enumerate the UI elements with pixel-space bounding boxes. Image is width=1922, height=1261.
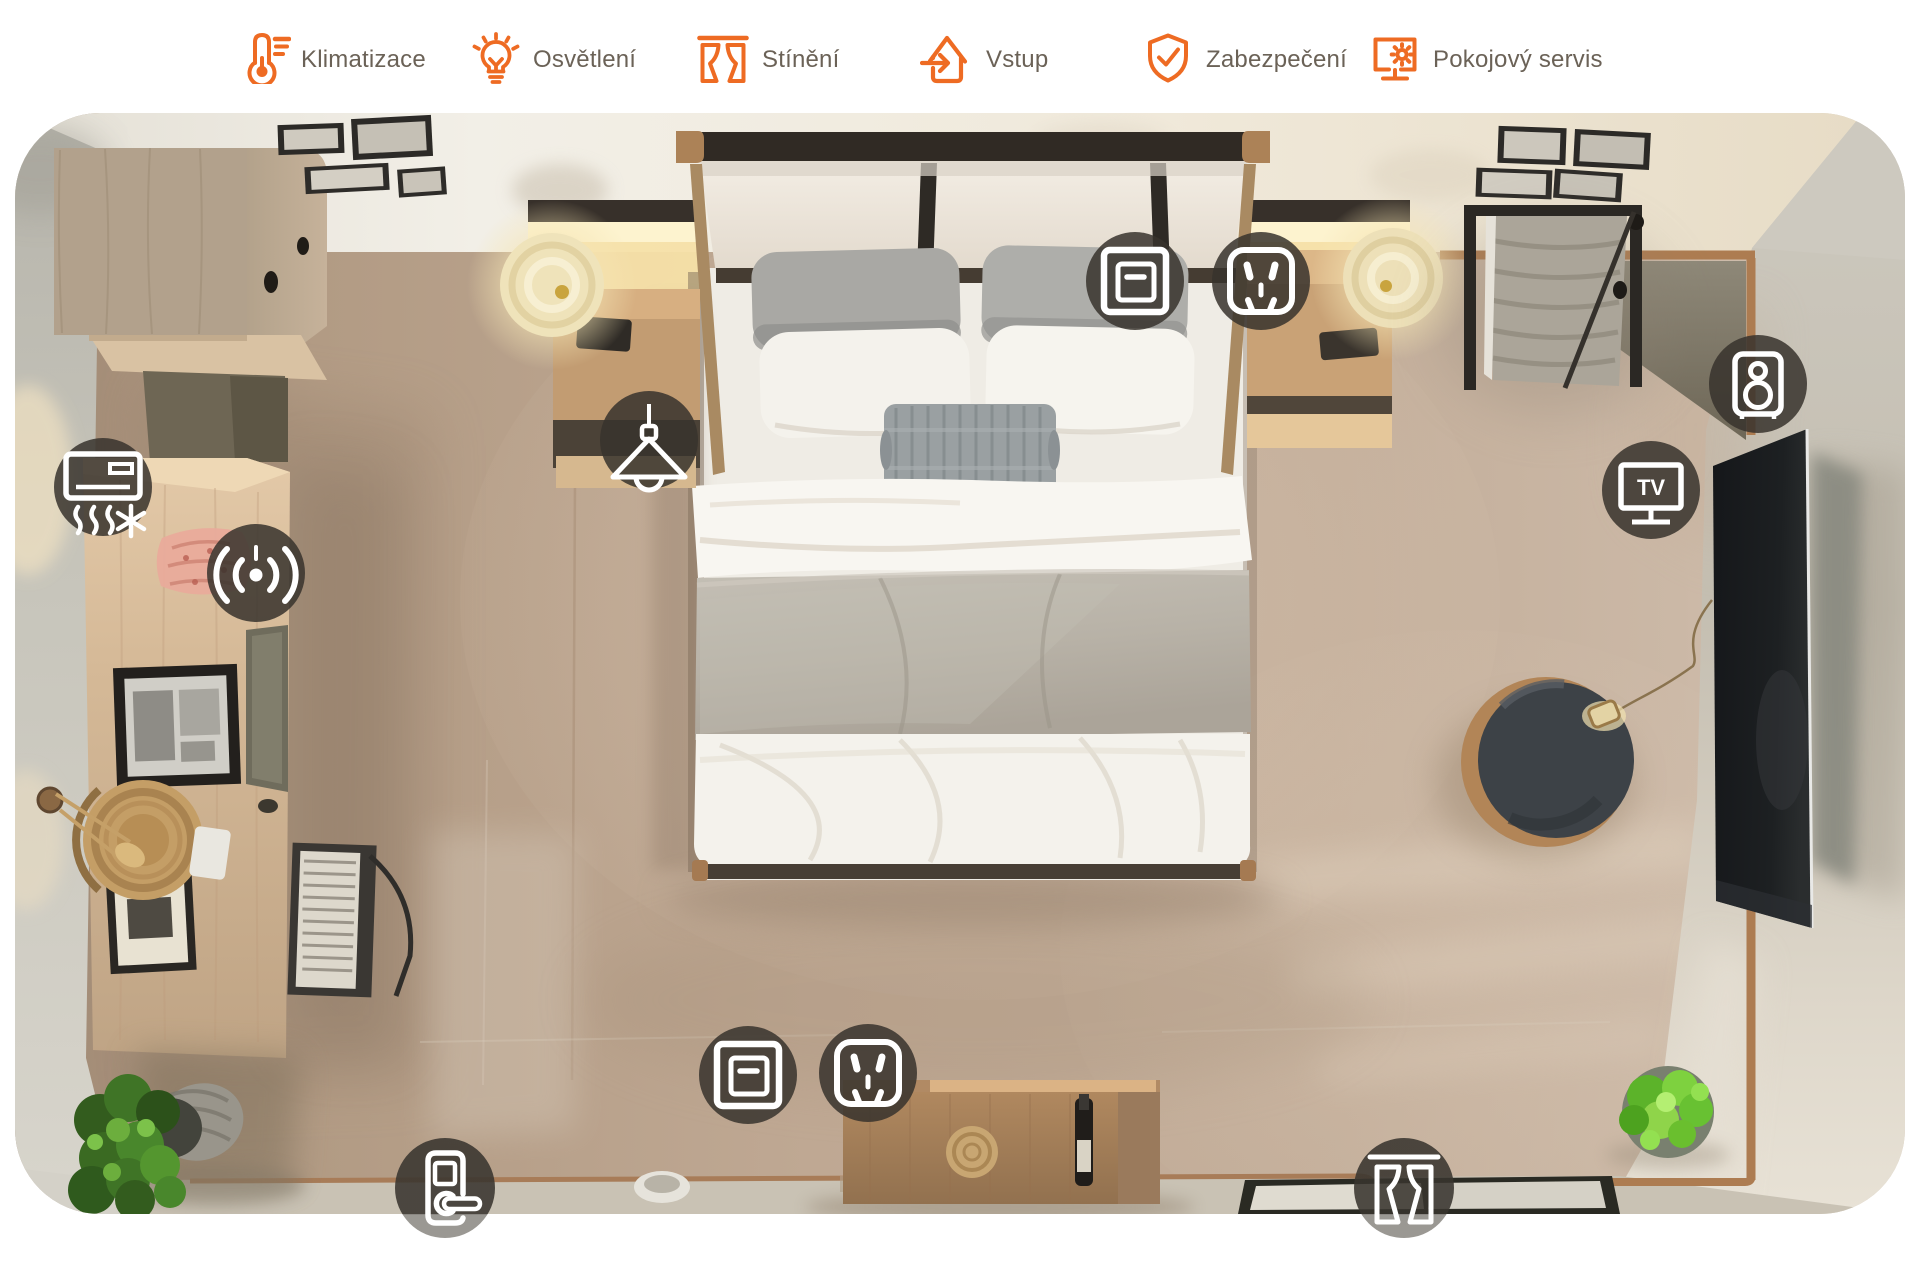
svg-text:TV: TV [1637, 475, 1665, 500]
